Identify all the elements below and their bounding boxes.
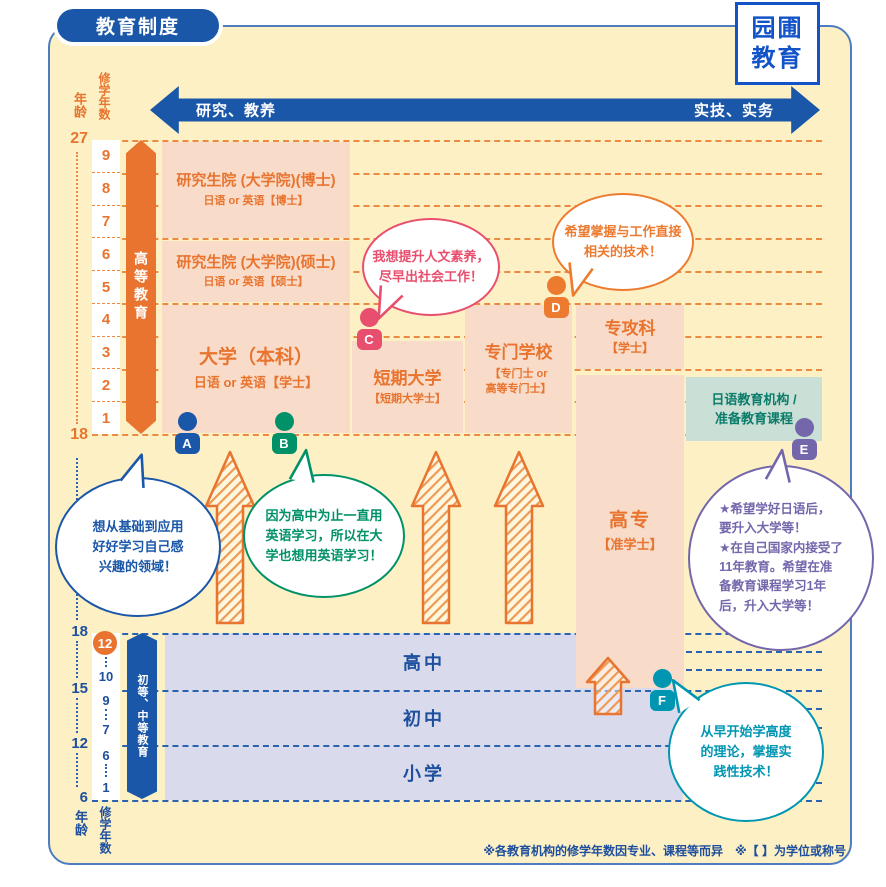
year-6: 6 (92, 748, 120, 763)
speech-d-text: 希望掌握与工作直接 相关的技术！ (564, 222, 681, 262)
junior-college-subtitle: 【短期大学士】 (369, 392, 446, 406)
age-axis-dots (76, 753, 78, 787)
speech-c-text: 我想提升人文素养， 尽早出社会工作！ (372, 247, 489, 287)
master-title: 研究生院 (大学院)(硕士) (176, 254, 335, 273)
year-cell: 6 (92, 238, 120, 271)
elementary-box: 小学 (165, 745, 683, 800)
orientation-left-label: 研究、教养 (196, 100, 276, 121)
kosen-title: 高专 (609, 509, 651, 533)
brand-logo-line1: 园圃 (752, 14, 804, 44)
year-cell: 8 (92, 173, 120, 206)
year-cell: 1 (92, 402, 120, 434)
year-cell: 7 (92, 206, 120, 239)
upper-years-scale: 9 8 7 6 5 4 3 2 1 (92, 140, 120, 434)
speech-a-text: 想从基础到应用 好好学习自己感 兴趣的领域！ (92, 517, 183, 577)
brand-logo-line2: 教育 (752, 44, 804, 74)
speech-b-text: 因为高中为止一直用 英语学习，所以在大 学也想用英语学习！ (265, 506, 382, 566)
progression-arrow-kosen (584, 655, 632, 717)
year-cell: 5 (92, 271, 120, 304)
person-icon (275, 412, 294, 431)
scale-dots (105, 657, 107, 667)
age-axis-label-bottom: 年龄 (71, 810, 90, 836)
year-12-circle: 12 (93, 631, 117, 655)
vocational-subtitle: 【专门士 or 高等专门士】 (486, 367, 552, 396)
kosen-subtitle: 【准学士】 (597, 537, 662, 554)
years-axis-label-bottom: 修学年数 (97, 806, 114, 854)
age-12: 12 (55, 735, 88, 752)
progression-arrow-vocational (492, 449, 546, 626)
education-system-infographic: 高中 初中 小学 研究生院 (大学院)(博士) 日语 or 英语【博士】 研究生… (0, 0, 886, 887)
student-a-badge: A (175, 433, 200, 454)
year-cell: 3 (92, 337, 120, 370)
year-cell: 4 (92, 304, 120, 337)
age-axis-dots (76, 641, 78, 678)
primary-secondary-label: 初等、中等教育 (134, 674, 150, 758)
elementary-label: 小学 (403, 760, 445, 786)
year-cell: 2 (92, 369, 120, 402)
student-d-badge: D (544, 297, 569, 318)
doctor-box: 研究生院 (大学院)(博士) 日语 or 英语【博士】 (162, 142, 350, 238)
junior-high-label: 初中 (403, 705, 445, 731)
kosen-box: 高专 【准学士】 (576, 375, 684, 688)
age-18-upper: 18 (55, 426, 88, 444)
university-title: 大学（本科） (199, 346, 313, 370)
year-cell: 9 (92, 140, 120, 173)
vocational-title: 专门学校 (485, 342, 553, 363)
speech-tail-b (285, 446, 323, 484)
higher-education-track-arrow: 高等教育 (126, 140, 156, 434)
page-title: 教育制度 (57, 9, 219, 42)
year-7: 7 (92, 722, 120, 737)
progression-arrow-junior-college (409, 449, 463, 626)
age-line-right (686, 669, 822, 671)
lower-years-scale: 12 10 9 7 6 1 (92, 633, 120, 800)
person-icon (178, 412, 197, 431)
year-1: 1 (92, 780, 120, 795)
age-axis-label-top: 年龄 (70, 92, 89, 118)
doctor-title: 研究生院 (大学院)(博士) (176, 172, 335, 191)
speech-f-text: 从早开始学高度 的理论，掌握实 践性技术！ (700, 722, 791, 782)
vocational-school-box: 专门学校 【专门士 or 高等专门士】 (465, 305, 572, 433)
student-marker-a: A (174, 412, 200, 454)
age-27: 27 (55, 130, 88, 148)
junior-college-title: 短期大学 (374, 368, 442, 389)
footnote: ※各教育机构的修学年数因专业、课程等而异 ※【 】为学位或称号 (360, 842, 846, 859)
advanced-course-box: 专攻科 【学士】 (576, 305, 684, 369)
age-18-lower: 18 (55, 623, 88, 640)
advanced-course-subtitle: 【学士】 (606, 341, 654, 357)
japanese-school-label: 日语教育机构 / 准备教育课程 (711, 390, 796, 429)
speech-e-text: ★希望学好日语后， 要升入大学等！ ★在自己国家内接受了 11年教育。希望在准 … (719, 500, 843, 616)
primary-secondary-track-arrow: 初等、中等教育 (127, 633, 157, 799)
age-axis-dots (76, 698, 78, 733)
speech-bubble-e: ★希望学好日语后， 要升入大学等！ ★在自己国家内接受了 11年教育。希望在准 … (688, 465, 874, 651)
year-10: 10 (92, 669, 120, 684)
scale-dots (105, 709, 107, 720)
age-6: 6 (55, 789, 88, 806)
university-subtitle: 日语 or 英语【学士】 (194, 375, 318, 392)
age-15: 15 (55, 680, 88, 697)
speech-tail-e (761, 446, 799, 484)
speech-bubble-b: 因为高中为止一直用 英语学习，所以在大 学也想用英语学习！ (243, 474, 405, 598)
age-line-18 (92, 633, 822, 635)
higher-education-label: 高等教育 (131, 251, 151, 323)
age-line-right (686, 651, 822, 653)
orientation-right-label: 实技、实务 (694, 100, 774, 121)
brand-logo: 园圃 教育 (735, 2, 820, 85)
student-c-badge: C (357, 329, 382, 350)
person-icon (795, 418, 814, 437)
master-box: 研究生院 (大学院)(硕士) 日语 or 英语【硕士】 (162, 241, 350, 302)
high-school-label: 高中 (403, 649, 445, 675)
doctor-subtitle: 日语 or 英语【博士】 (203, 194, 308, 208)
age-axis-dots-upper (76, 152, 78, 424)
scale-dots (105, 764, 107, 777)
master-subtitle: 日语 or 英语【硕士】 (203, 275, 308, 289)
speech-bubble-a: 想从基础到应用 好好学习自己感 兴趣的领域！ (55, 477, 221, 617)
advanced-course-title: 专攻科 (605, 318, 656, 339)
junior-college-box: 短期大学 【短期大学士】 (352, 341, 463, 433)
year-9: 9 (92, 693, 120, 708)
years-axis-label-top: 修学年数 (96, 72, 113, 120)
